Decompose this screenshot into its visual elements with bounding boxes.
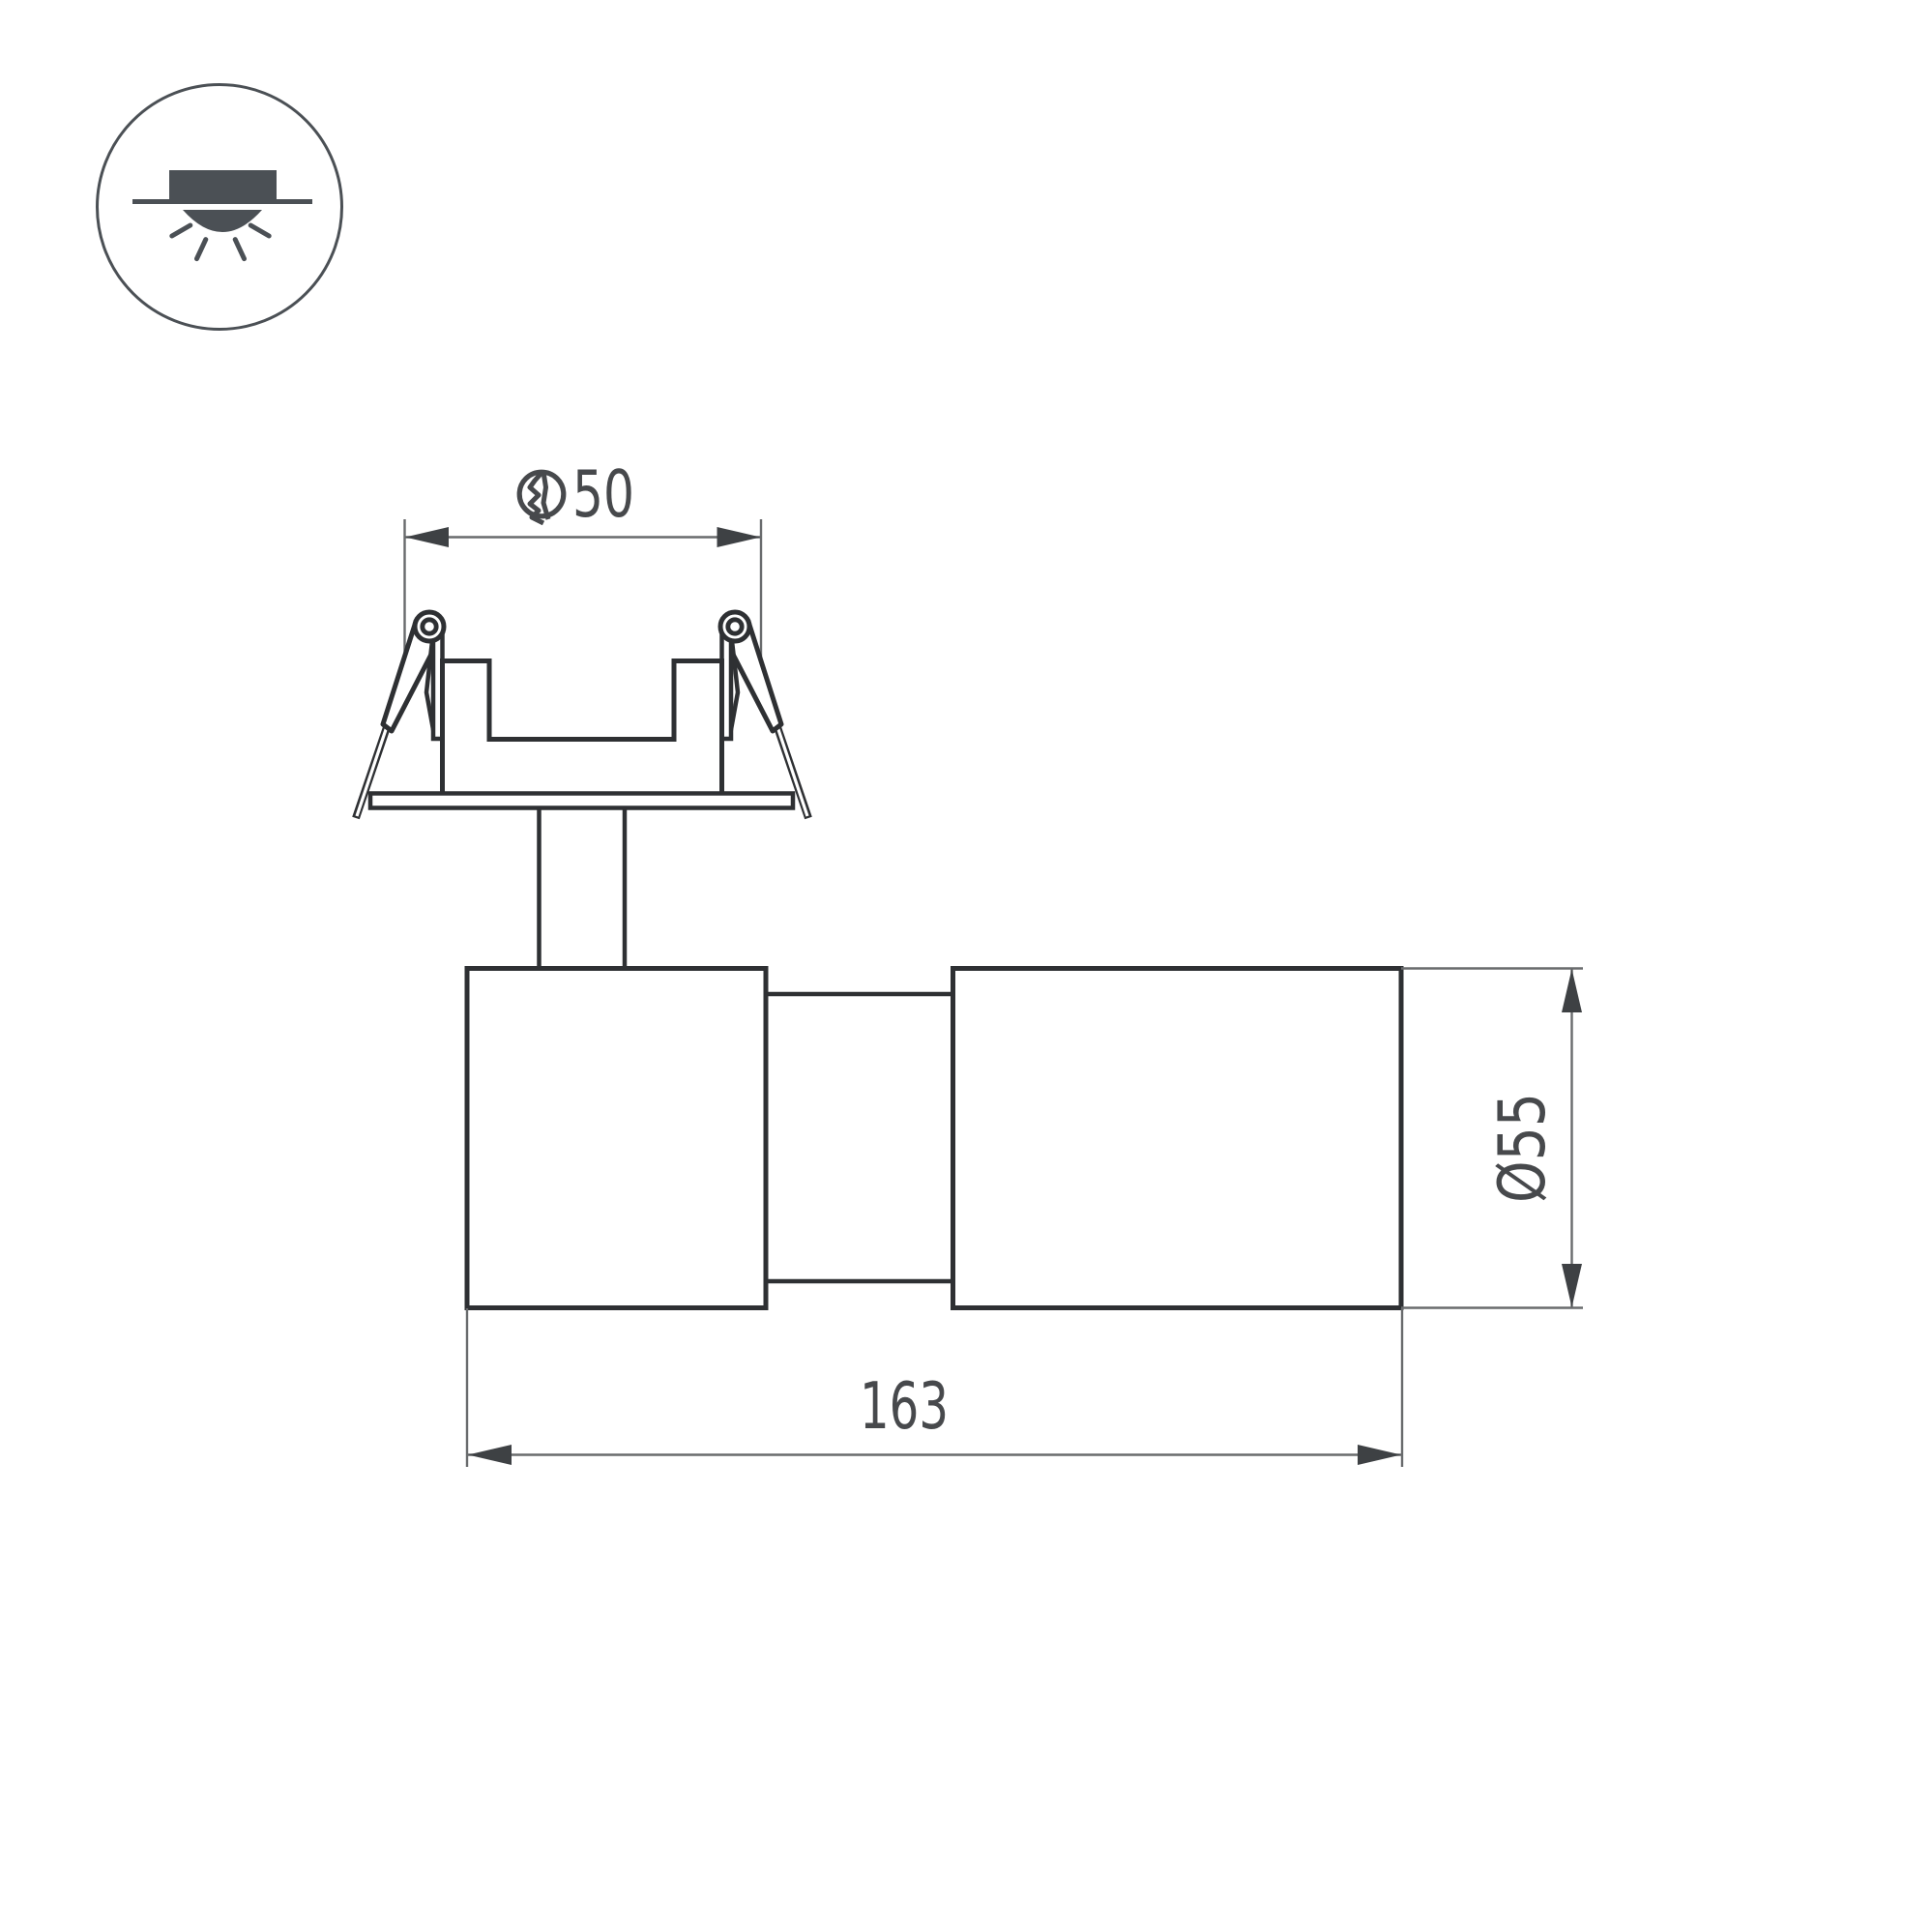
stem bbox=[540, 808, 626, 968]
arrowhead-left bbox=[405, 527, 449, 547]
swivel-joint bbox=[766, 994, 953, 1281]
arrowhead-bottom bbox=[1562, 1264, 1582, 1307]
rear-body-block bbox=[467, 969, 766, 1308]
arrowhead-top bbox=[1562, 969, 1582, 1012]
drawing-canvas: 50 bbox=[0, 0, 1932, 1932]
clip-pivot-hole bbox=[423, 620, 436, 633]
cutout-value-label: 50 bbox=[572, 456, 634, 532]
badge-housing-box bbox=[169, 170, 277, 200]
badge-circle bbox=[98, 85, 342, 330]
dimension-drawing: 50 bbox=[0, 0, 1932, 1932]
length-value-label: 163 bbox=[860, 1368, 949, 1444]
clip-pivot-hole bbox=[728, 620, 742, 633]
arrowhead-left bbox=[468, 1445, 512, 1465]
cutout-hole-icon bbox=[519, 472, 564, 523]
front-barrel bbox=[953, 969, 1402, 1308]
recessed-housing bbox=[443, 661, 722, 794]
arrowhead-right bbox=[717, 527, 761, 547]
trim-flange bbox=[370, 794, 793, 808]
recessed-downlight-icon bbox=[98, 85, 342, 330]
diameter-value-label: Ø55 bbox=[1484, 1093, 1560, 1203]
spring-clip-left bbox=[356, 612, 444, 818]
badge-lamp-dome bbox=[183, 210, 262, 232]
spring-clip-right bbox=[720, 612, 808, 818]
cutout-dimension: 50 bbox=[405, 456, 762, 686]
luminaire-drawing bbox=[356, 612, 1401, 1308]
diameter-dimension: Ø55 bbox=[1401, 969, 1583, 1308]
arrowhead-right bbox=[1358, 1445, 1401, 1465]
length-dimension: 163 bbox=[467, 1308, 1402, 1467]
